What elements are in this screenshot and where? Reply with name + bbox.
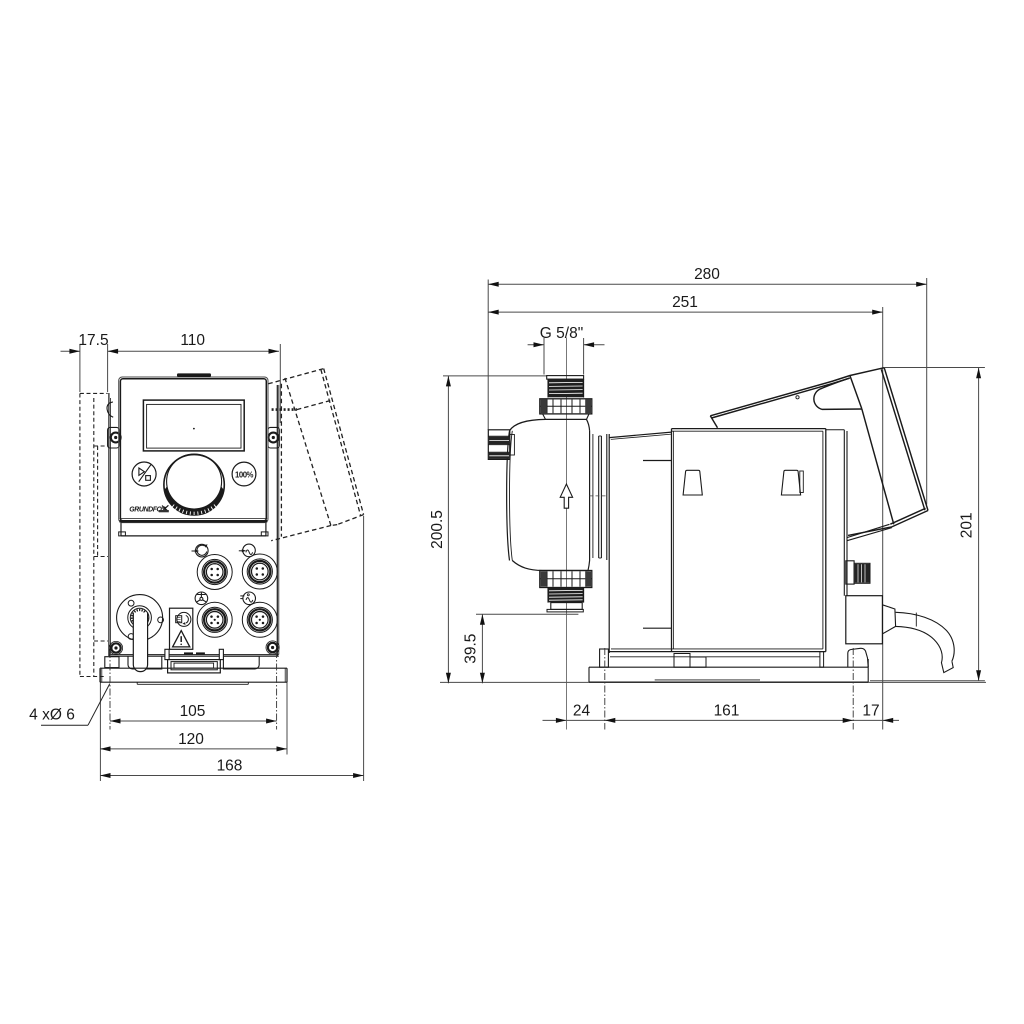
svg-text:110: 110 xyxy=(180,332,205,349)
svg-text:G 5/8": G 5/8" xyxy=(540,325,583,342)
svg-text:120: 120 xyxy=(178,731,204,748)
svg-text:17.5: 17.5 xyxy=(78,332,108,349)
svg-text:201: 201 xyxy=(959,512,976,538)
svg-text:39.5: 39.5 xyxy=(463,634,480,664)
svg-text:161: 161 xyxy=(714,702,740,719)
svg-text:200.5: 200.5 xyxy=(429,510,446,549)
svg-text:4 xØ 6: 4 xØ 6 xyxy=(29,707,75,724)
svg-text:251: 251 xyxy=(672,294,698,311)
svg-text:280: 280 xyxy=(694,266,720,283)
svg-text:24: 24 xyxy=(573,702,591,719)
svg-text:100%: 100% xyxy=(235,471,254,480)
svg-text:17: 17 xyxy=(862,702,879,719)
svg-text:168: 168 xyxy=(217,758,243,775)
svg-text:105: 105 xyxy=(180,703,206,720)
